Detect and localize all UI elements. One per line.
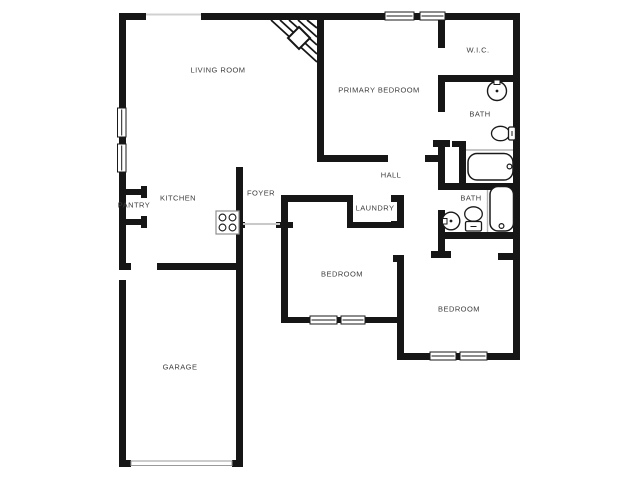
wall-segment — [456, 353, 460, 360]
room-label-pantry: PANTRY — [118, 201, 150, 210]
room-label-primary-bath: BATH — [469, 110, 490, 119]
wall-segment — [141, 186, 147, 198]
wall-segment — [452, 141, 466, 147]
toilet-icon — [465, 207, 483, 231]
wall-segment — [119, 189, 141, 195]
room-label-hall: HALL — [381, 171, 402, 180]
wall-segment — [487, 353, 520, 360]
wall-segment — [282, 195, 353, 202]
wall-segment — [431, 251, 451, 258]
wall-segment — [445, 13, 520, 20]
room-label-hall-bath: BATH — [460, 194, 481, 203]
wall-segment — [513, 13, 520, 360]
bathtub-icon — [468, 154, 513, 181]
room-label-foyer: FOYER — [247, 189, 275, 198]
wall-segment — [393, 255, 403, 262]
wall-segment — [438, 147, 445, 188]
window-symbol — [420, 12, 445, 20]
room-label-bedroom-right: BEDROOM — [438, 305, 480, 314]
cooktop-icon — [216, 211, 239, 234]
room-label-kitchen: KITCHEN — [160, 194, 196, 203]
room-label-wic: W.I.C. — [466, 46, 489, 55]
front-door-threshold — [243, 223, 280, 225]
wall-segment — [443, 75, 520, 82]
wall-segment — [119, 219, 141, 225]
bathtub-icon — [490, 187, 514, 232]
window-symbol — [118, 108, 127, 137]
room-label-laundry: LAUNDRY — [356, 204, 395, 213]
wall-segment — [459, 141, 466, 184]
windows — [118, 12, 488, 360]
wall-segment — [281, 195, 288, 323]
wall-segment — [498, 253, 520, 260]
wall-segment — [391, 195, 404, 202]
wall-segment — [317, 13, 324, 162]
floor-plan: LIVING ROOM PRIMARY BEDROOM W.I.C. BATH … — [0, 0, 640, 480]
room-label-bedroom-center: BEDROOM — [321, 270, 363, 279]
wall-segment — [119, 13, 126, 108]
wall-segment — [141, 216, 147, 228]
corner-fireplace-icon — [271, 20, 317, 62]
garage-door — [131, 461, 232, 466]
wall-segment — [157, 263, 243, 270]
wall-segment — [397, 255, 404, 360]
window-symbol — [385, 12, 414, 20]
wall-opening-line — [146, 14, 201, 16]
room-label-living-room: LIVING ROOM — [191, 66, 246, 75]
room-label-primary-bedroom: PRIMARY BEDROOM — [338, 86, 420, 95]
wall-segment — [438, 232, 520, 239]
wall-segment — [365, 317, 404, 323]
wall-segment — [119, 460, 131, 467]
wall-segment — [433, 140, 450, 147]
window-symbol — [430, 352, 456, 360]
sink-icon — [488, 80, 507, 101]
wall-segment — [281, 317, 310, 323]
wall-segment — [119, 263, 131, 270]
sink-icon — [442, 212, 460, 230]
window-symbol — [460, 352, 487, 360]
wall-segment — [232, 460, 243, 467]
wall-segment — [119, 137, 126, 144]
window-symbol — [118, 144, 127, 172]
toilet-icon — [492, 126, 516, 140]
wall-segment — [317, 155, 388, 162]
wall-segment — [201, 13, 385, 20]
walls — [119, 13, 520, 467]
room-label-garage: GARAGE — [163, 363, 198, 372]
window-symbol — [310, 316, 337, 324]
floor-plan-drawing — [0, 0, 640, 480]
wall-segment — [119, 280, 126, 467]
wall-segment — [347, 222, 404, 228]
window-symbol — [341, 316, 365, 324]
wall-segment — [414, 13, 420, 20]
